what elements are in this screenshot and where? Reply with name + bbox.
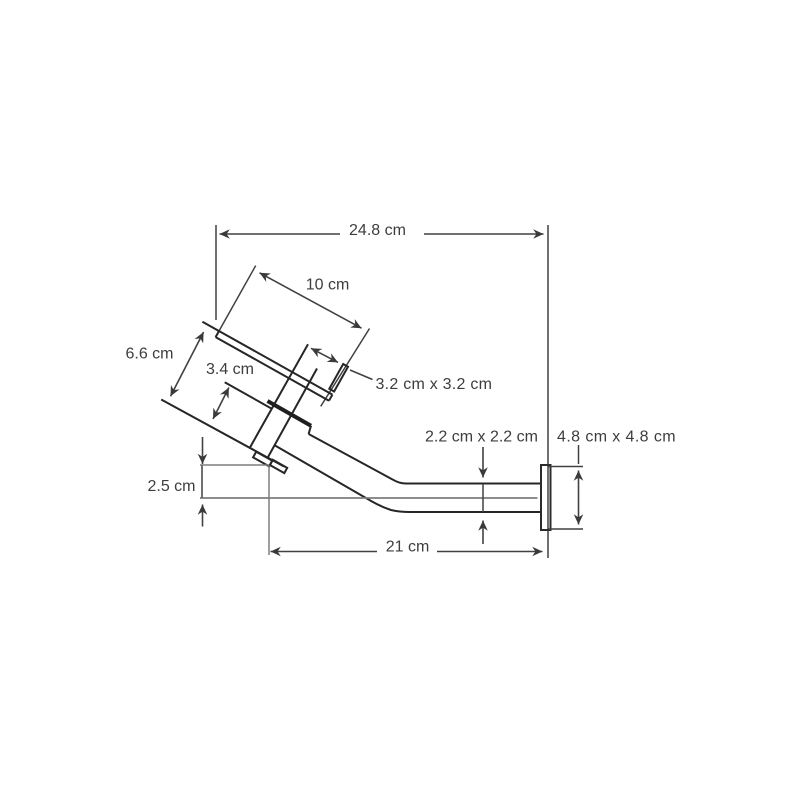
svg-text:2.2 cm x 2.2 cm: 2.2 cm x 2.2 cm bbox=[425, 429, 538, 446]
svg-text:2.5 cm: 2.5 cm bbox=[147, 478, 195, 495]
svg-text:10 cm: 10 cm bbox=[306, 277, 350, 294]
svg-text:24.8 cm: 24.8 cm bbox=[349, 222, 406, 239]
svg-text:6.6 cm: 6.6 cm bbox=[125, 346, 173, 363]
svg-text:21 cm: 21 cm bbox=[386, 539, 430, 556]
svg-text:3.4 cm: 3.4 cm bbox=[206, 361, 254, 378]
svg-text:4.8 cm x 4.8 cm: 4.8 cm x 4.8 cm bbox=[557, 429, 676, 446]
svg-text:3.2 cm x 3.2 cm: 3.2 cm x 3.2 cm bbox=[376, 376, 493, 393]
